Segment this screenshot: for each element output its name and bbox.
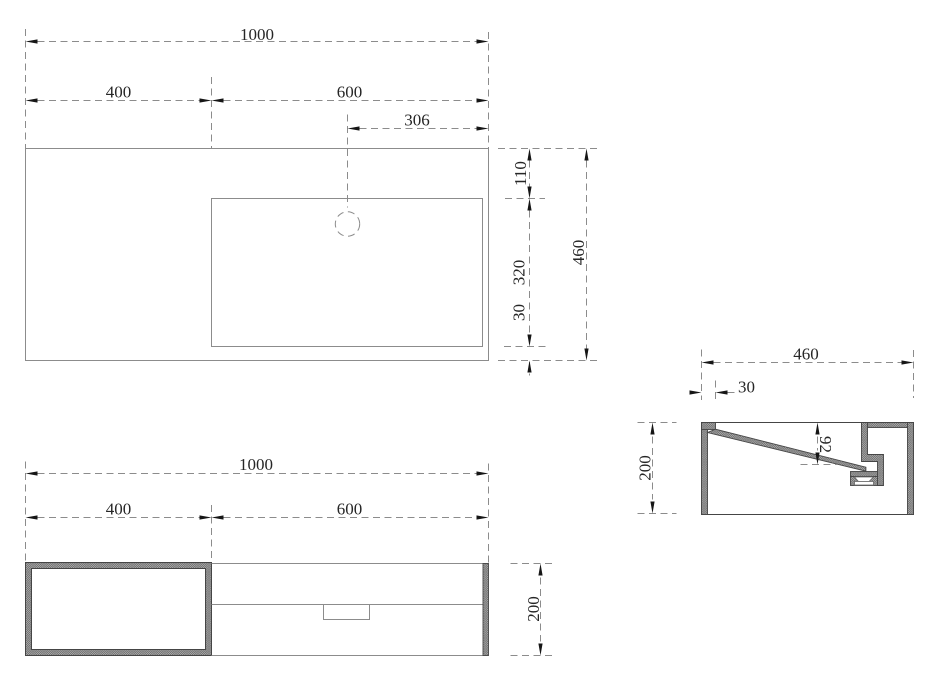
svg-text:320: 320: [510, 260, 529, 286]
svg-text:460: 460: [569, 240, 588, 266]
svg-text:200: 200: [636, 455, 655, 481]
svg-text:306: 306: [404, 111, 430, 130]
svg-text:1000: 1000: [240, 25, 274, 44]
svg-text:30: 30: [738, 377, 755, 396]
svg-text:92: 92: [816, 436, 835, 453]
svg-text:200: 200: [524, 596, 543, 622]
svg-text:600: 600: [337, 83, 363, 102]
svg-text:110: 110: [511, 161, 530, 186]
svg-text:460: 460: [793, 344, 819, 363]
svg-text:1000: 1000: [239, 455, 273, 474]
svg-text:600: 600: [337, 499, 363, 518]
svg-text:400: 400: [106, 499, 132, 518]
svg-text:30: 30: [510, 304, 529, 321]
svg-text:400: 400: [106, 83, 132, 102]
